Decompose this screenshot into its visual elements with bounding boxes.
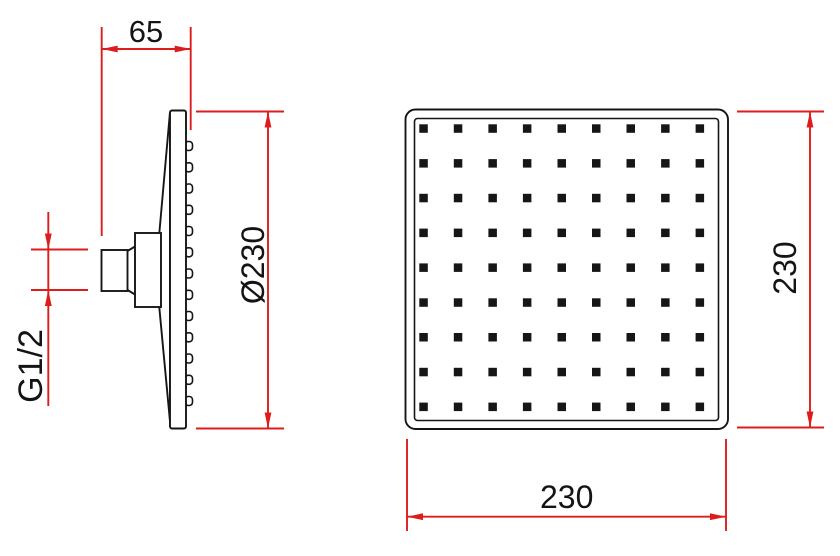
nozzle-dot — [488, 229, 497, 238]
nozzle-dot — [523, 263, 532, 272]
arrowhead — [710, 513, 726, 520]
nozzle-dot — [627, 124, 636, 133]
nozzle-dot — [419, 124, 428, 133]
nozzle-dot — [592, 124, 601, 133]
dimension-thread: G1/2 — [12, 212, 88, 406]
nozzle-dot — [661, 368, 670, 377]
nozzle-dot — [661, 229, 670, 238]
nozzle-dot — [454, 298, 463, 307]
nozzle-dot — [696, 333, 705, 342]
nozzle-dot — [419, 298, 428, 307]
nozzle-dot — [696, 159, 705, 168]
nozzle-dot — [523, 194, 532, 203]
nozzle-dot — [592, 333, 601, 342]
nozzle-dot — [558, 298, 567, 307]
nozzle-dot — [592, 263, 601, 272]
nozzle-dot — [523, 229, 532, 238]
nozzle-dot — [696, 403, 705, 412]
drawing-canvas: 65 Ø230 G1/2 230 — [0, 0, 840, 556]
nozzle-dot — [558, 194, 567, 203]
nozzle-dot — [523, 368, 532, 377]
nozzle-dot — [696, 194, 705, 203]
nozzle-dot — [696, 124, 705, 133]
dim-depth-label: 65 — [129, 14, 163, 49]
nozzle-dot — [627, 298, 636, 307]
nozzle-dot — [419, 333, 428, 342]
nozzle-dot — [523, 124, 532, 133]
nozzle-dot — [627, 263, 636, 272]
nozzle-dot — [661, 124, 670, 133]
dimension-height: 230 — [737, 112, 824, 428]
nozzle-dot — [558, 229, 567, 238]
nozzle-dot — [627, 333, 636, 342]
nozzle-dot — [627, 229, 636, 238]
nozzle-dot — [627, 368, 636, 377]
dim-thread-label: G1/2 — [12, 329, 50, 403]
nozzle-dot — [488, 194, 497, 203]
nozzle-dot — [523, 298, 532, 307]
thread-pipe — [102, 250, 128, 291]
nozzle-dot — [558, 159, 567, 168]
nozzle-dot — [454, 368, 463, 377]
nozzle-dot — [696, 263, 705, 272]
nozzle-dot — [454, 124, 463, 133]
nozzle-dot — [661, 298, 670, 307]
arrowhead — [102, 46, 118, 53]
arrowhead — [407, 513, 423, 520]
dim-height-label: 230 — [767, 241, 803, 294]
nozzle-dot — [523, 333, 532, 342]
nozzle-dot — [419, 229, 428, 238]
nozzle-dot — [454, 403, 463, 412]
arrowhead — [175, 46, 191, 53]
nozzle-dot — [696, 368, 705, 377]
nozzle-dot — [488, 263, 497, 272]
nozzle-dot — [488, 298, 497, 307]
dim-width-label: 230 — [540, 479, 593, 515]
nozzle-dot — [523, 403, 532, 412]
nozzle-dot — [592, 194, 601, 203]
front-view — [406, 110, 729, 430]
nozzle-dot — [558, 403, 567, 412]
arrowhead — [265, 413, 272, 429]
nozzle-dot — [488, 333, 497, 342]
nozzle-dot — [558, 368, 567, 377]
nozzle-dot — [488, 368, 497, 377]
nozzle-dot — [488, 403, 497, 412]
nozzle-dot — [592, 298, 601, 307]
nozzle-dot — [696, 229, 705, 238]
hub-taper — [128, 247, 136, 295]
nozzle-dot — [454, 333, 463, 342]
nozzle-dot — [454, 263, 463, 272]
technical-drawing: 65 Ø230 G1/2 230 — [0, 0, 840, 556]
nozzle-dot — [523, 159, 532, 168]
nozzle-dot — [419, 159, 428, 168]
nozzle-dot — [558, 263, 567, 272]
nozzle-dot — [661, 403, 670, 412]
dimension-width: 230 — [407, 439, 726, 531]
nozzle-dot — [592, 229, 601, 238]
nozzle-dot — [419, 263, 428, 272]
arrowhead — [807, 412, 814, 428]
nozzle-dot — [627, 194, 636, 203]
nozzle-dot — [454, 229, 463, 238]
dimension-diameter: Ø230 — [196, 112, 284, 429]
nozzle-dot — [488, 124, 497, 133]
nozzle-dot — [558, 333, 567, 342]
nozzle-dot — [661, 333, 670, 342]
face-plate-edge — [170, 111, 186, 429]
nozzle-dot — [627, 159, 636, 168]
nozzle-dot — [558, 124, 567, 133]
mounting-hub — [135, 233, 161, 307]
nozzle-dot — [592, 159, 601, 168]
nozzle-dot — [696, 298, 705, 307]
nozzle-dot — [592, 403, 601, 412]
arrowhead — [265, 112, 272, 128]
nozzle-dot — [661, 263, 670, 272]
nozzle-dot — [627, 403, 636, 412]
nozzle-dot — [454, 159, 463, 168]
nozzle-dot — [592, 368, 601, 377]
nozzle-grid — [419, 124, 704, 411]
arrowhead — [45, 290, 52, 306]
nozzle-dot — [454, 194, 463, 203]
nozzle-dot — [419, 194, 428, 203]
nozzle-dot — [419, 403, 428, 412]
nozzle-dot — [419, 368, 428, 377]
nozzle-dot — [488, 159, 497, 168]
arrowhead — [45, 234, 52, 250]
dim-diameter-label: Ø230 — [235, 226, 271, 304]
arrowhead — [807, 112, 814, 128]
nozzle-dot — [661, 194, 670, 203]
side-view — [102, 111, 193, 429]
nozzle-dot — [661, 159, 670, 168]
